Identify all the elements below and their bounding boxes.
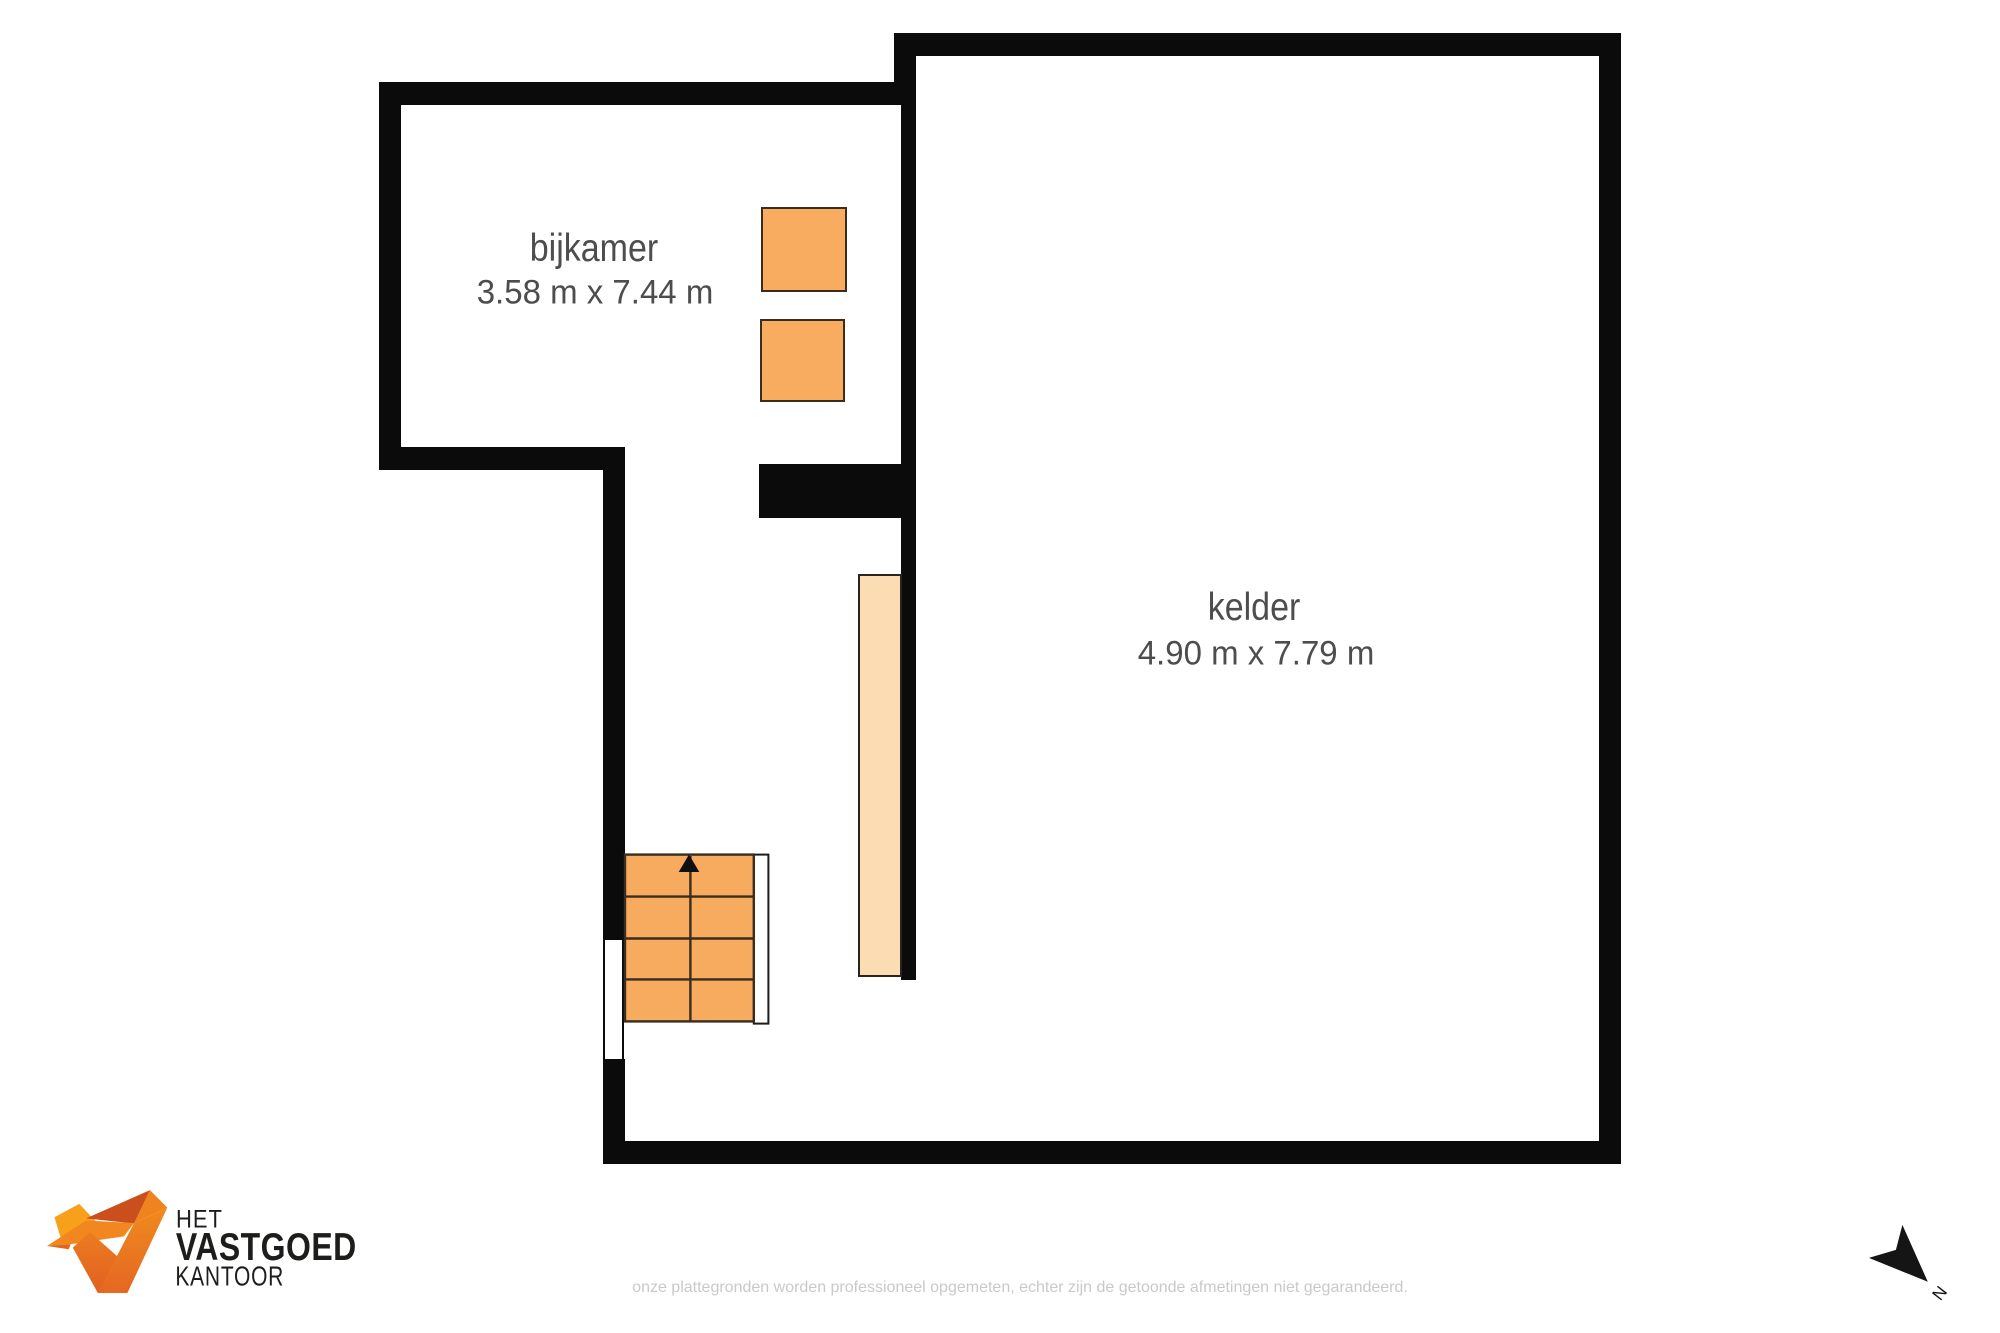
svg-text:N: N <box>1928 1283 1951 1304</box>
